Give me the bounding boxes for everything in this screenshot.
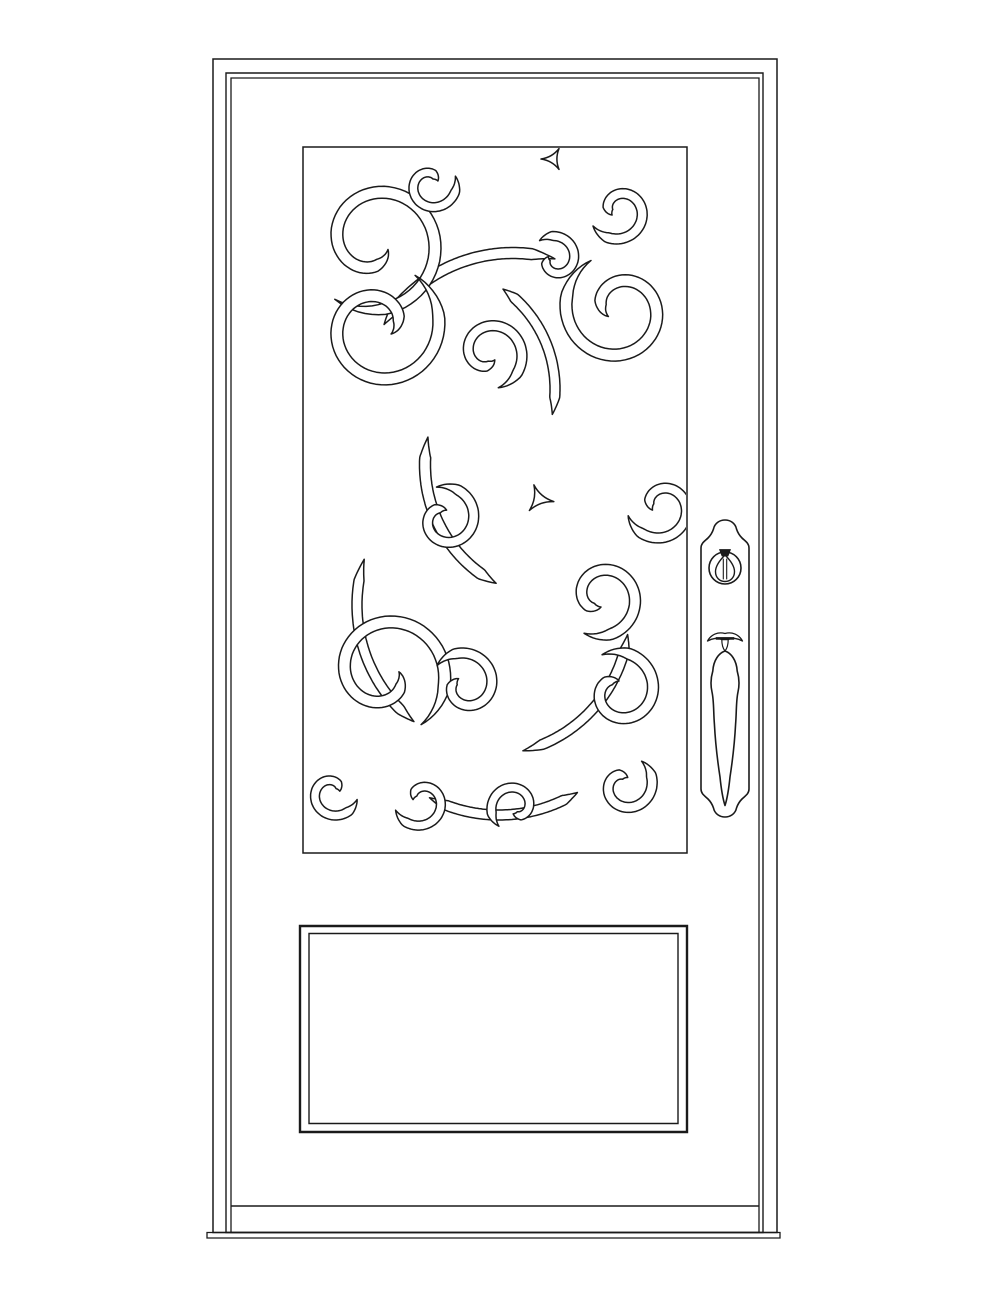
scroll-spiral: [593, 189, 647, 244]
scroll-sweep: [430, 793, 578, 821]
scroll-spiral: [409, 168, 460, 211]
scroll-filler-triangle: [541, 149, 559, 170]
threshold-sill: [207, 1233, 780, 1239]
scroll-spiral: [331, 275, 445, 385]
scroll-spiral: [576, 564, 640, 640]
drawing-canvas: [0, 0, 1000, 1294]
scroll-spiral: [560, 261, 663, 362]
door-handle: [701, 520, 749, 817]
bottom-panel-inner-molding: [309, 934, 678, 1124]
bottom-panel-outer-molding: [300, 926, 687, 1132]
scroll-spiral: [594, 648, 658, 724]
lockset-cylinder: [709, 552, 741, 584]
scroll-filler-triangle: [529, 485, 553, 511]
scroll-spiral: [603, 761, 657, 812]
threshold-sill: [207, 1233, 780, 1239]
scrollwork-grille: [311, 149, 692, 831]
frame-outer-edge: [213, 59, 777, 1233]
scroll-spiral: [628, 483, 691, 543]
scroll-sweep: [503, 289, 560, 414]
door-frame: [213, 59, 777, 1233]
door-elevation-drawing: [0, 0, 1000, 1294]
scroll-spiral: [396, 782, 446, 830]
scroll-spiral: [463, 321, 527, 388]
door-slab-outer-edge: [226, 73, 763, 1233]
scroll-spiral: [311, 776, 358, 820]
bottom-recessed-panel: [300, 926, 687, 1132]
